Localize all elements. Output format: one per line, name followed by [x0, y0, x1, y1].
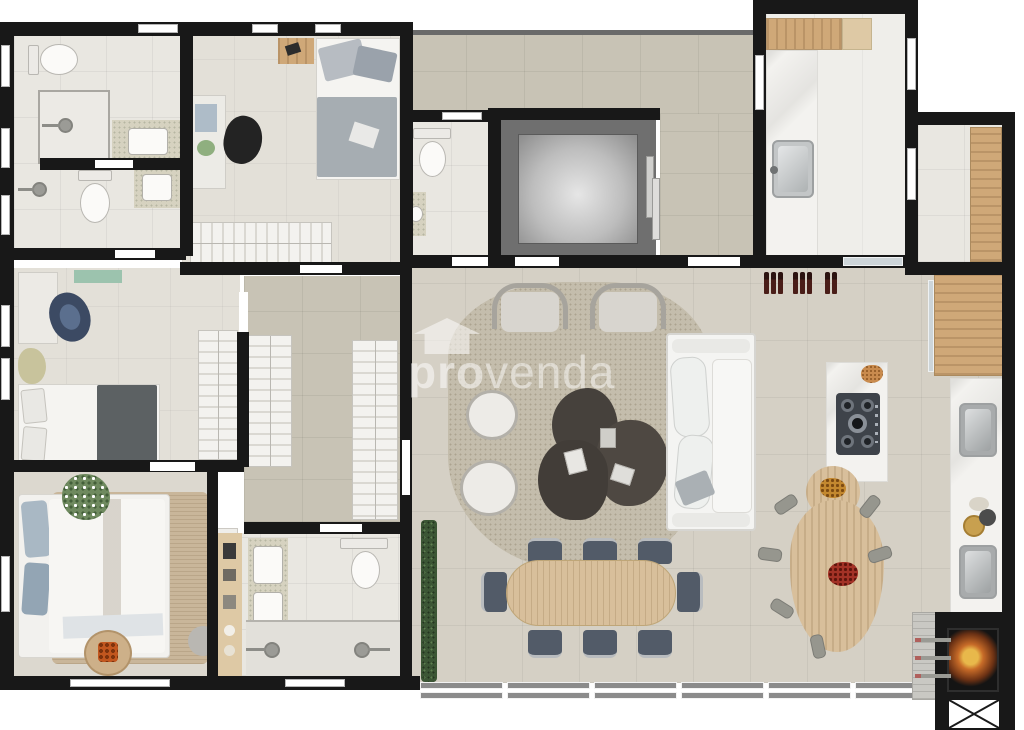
wine-rack — [764, 272, 848, 296]
wall-master-bath-left — [207, 468, 218, 680]
side-table-round-1 — [466, 390, 518, 440]
walkin-wardrobe-left — [248, 335, 292, 467]
door-bath1-bath2 — [95, 160, 133, 168]
vanity-1 — [112, 120, 180, 162]
wall-storage-bottom — [905, 262, 1015, 275]
desk — [188, 95, 226, 189]
window-top-2 — [252, 24, 278, 33]
nightstand — [278, 38, 314, 64]
storage-wardrobe — [970, 127, 1002, 262]
shower-enclosure-1 — [38, 90, 110, 164]
bbq-grill — [947, 628, 999, 692]
window-left-4 — [1, 305, 10, 347]
duct-shaft-symbol — [949, 700, 999, 728]
walkin-wardrobe-right — [352, 340, 398, 520]
kitchen-sink-1 — [959, 403, 997, 457]
skewer-3 — [915, 674, 951, 678]
dining-chair-6 — [528, 630, 562, 658]
double-shower — [246, 620, 402, 678]
door-bath2 — [115, 250, 155, 258]
door-living-hedge — [402, 440, 410, 495]
kitchen-island — [826, 362, 888, 482]
laundry-cabinet — [766, 18, 842, 50]
wall-bedroom1-walkin — [180, 262, 410, 275]
window-top-1 — [138, 24, 178, 33]
door-master-bedroom — [150, 462, 195, 471]
wall-service-left — [753, 0, 766, 268]
door-service-corridor — [755, 55, 764, 110]
wall-hallbath-elevator — [488, 112, 501, 268]
wall-top-service — [753, 0, 918, 14]
elevator-door-2 — [652, 178, 660, 240]
wall-storage-top — [905, 112, 1015, 125]
wall-right-outer — [1002, 112, 1015, 617]
bean-bag — [18, 348, 46, 384]
dining-chair-7 — [583, 630, 617, 658]
sofa — [666, 333, 756, 531]
master-side-table — [84, 630, 132, 676]
single-bed-1 — [316, 38, 400, 180]
window-bottom-2 — [285, 679, 345, 687]
door-living-side — [515, 257, 559, 266]
window-hallbath — [442, 112, 482, 120]
bar-platter-1 — [820, 478, 846, 498]
elevator-shaft — [500, 118, 656, 258]
master-plant — [62, 474, 110, 520]
kitchen-sink-2 — [959, 545, 997, 599]
window-left-6 — [1, 556, 10, 612]
balcony-sliding-windows — [420, 682, 938, 701]
corridor-leg-floor — [660, 114, 756, 258]
door-hallbath — [452, 257, 488, 266]
window-left-5 — [1, 358, 10, 400]
hall-corridor-floor — [408, 30, 758, 114]
wall-elevator-top — [488, 108, 660, 120]
desk-mat-green — [74, 270, 122, 283]
door-service-2 — [907, 148, 916, 200]
hall-bathroom-floor — [405, 122, 491, 258]
side-table-round-2 — [460, 460, 518, 516]
island-decor — [861, 365, 883, 383]
window-left-1 — [1, 45, 10, 87]
bed-2-blanket — [97, 385, 157, 463]
window-left-3 — [1, 195, 10, 235]
front-door-opening — [688, 257, 740, 266]
counter-decor-bowls — [961, 497, 997, 541]
bbq-corner — [935, 612, 1015, 730]
skewer-1 — [915, 638, 951, 642]
dining-chair-5 — [677, 572, 703, 612]
wall-baths-bedroom1 — [180, 22, 193, 256]
door-bedroom2 — [239, 292, 248, 332]
dining-chair-8 — [638, 630, 672, 658]
wardrobe-bedroom-1 — [190, 222, 332, 264]
elevator-cab — [518, 134, 638, 244]
armchair-1 — [492, 283, 568, 333]
single-bed-2 — [18, 384, 160, 466]
door-master-bath — [320, 524, 362, 532]
door-service-1 — [907, 38, 916, 90]
cabinet-glass-door — [928, 280, 934, 372]
laundry-cabinet-light — [842, 18, 872, 50]
vanity-2 — [134, 168, 180, 208]
service-glass-door — [843, 257, 903, 266]
apartment-floor-plan: pro venda — [0, 0, 1024, 730]
bath-linen-shelf — [218, 533, 242, 676]
wall-bath2-bedroom2 — [14, 248, 186, 260]
window-bottom-1 — [70, 679, 170, 687]
door-walkin-entry — [300, 265, 342, 273]
wall-top-left — [8, 22, 406, 36]
dining-table — [506, 560, 676, 626]
laundry-sink — [772, 140, 814, 198]
armchair-2 — [590, 283, 666, 333]
skewer-2 — [915, 656, 951, 660]
kitchen-tall-cabinet — [934, 272, 1004, 376]
wardrobe-bedroom-2 — [198, 330, 238, 460]
kitchen-wall-counter — [950, 378, 1004, 614]
window-left-2 — [1, 128, 10, 168]
wall-bedroom1-hall — [400, 22, 413, 268]
wall-bedroom2-walkin — [237, 332, 249, 467]
cooktop — [836, 393, 880, 455]
planter-hedge — [421, 520, 437, 682]
dining-chair-4 — [481, 572, 507, 612]
window-top-3 — [315, 24, 341, 33]
